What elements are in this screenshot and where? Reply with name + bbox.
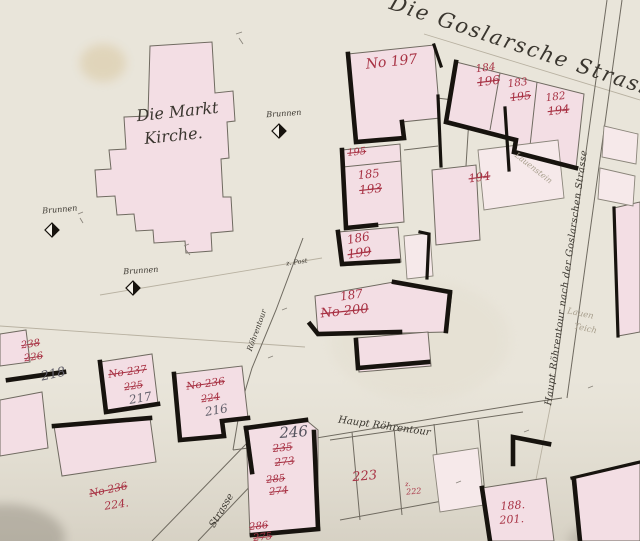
house-number-223: 223 (351, 468, 378, 485)
building-left-edge-2 (0, 392, 48, 456)
historical-map: Die Goslarsche Strasse. Die Markt Kirche… (0, 0, 640, 541)
house-number-246-pencil: 246 (278, 422, 309, 442)
house-number-188-line1: 188. (500, 498, 525, 513)
house-number-184-old: 196 (476, 73, 501, 90)
house-number-275-old2: 275 (252, 531, 273, 541)
house-number-273-old2: 273 (273, 455, 295, 469)
house-number-182-old: 194 (547, 102, 570, 119)
house-number-273-old1: 235 (271, 441, 293, 455)
house-number-183-new: 183 (507, 76, 529, 90)
house-number-274-old2: 274 (268, 485, 289, 498)
historical-map-svg: Die Goslarsche Strasse. Die Markt Kirche… (0, 0, 640, 541)
house-number-185-new: 185 (357, 166, 380, 182)
house-number-185-old: 193 (358, 181, 383, 197)
house-number-183-old: 195 (509, 89, 531, 104)
house-number-274-old1: 285 (265, 473, 286, 486)
house-number-188-line2: 201. (498, 512, 524, 527)
house-number-222: 222 (405, 486, 422, 496)
house-number-195-struck: 195 (347, 146, 367, 159)
plot-bottom-center (433, 448, 484, 512)
